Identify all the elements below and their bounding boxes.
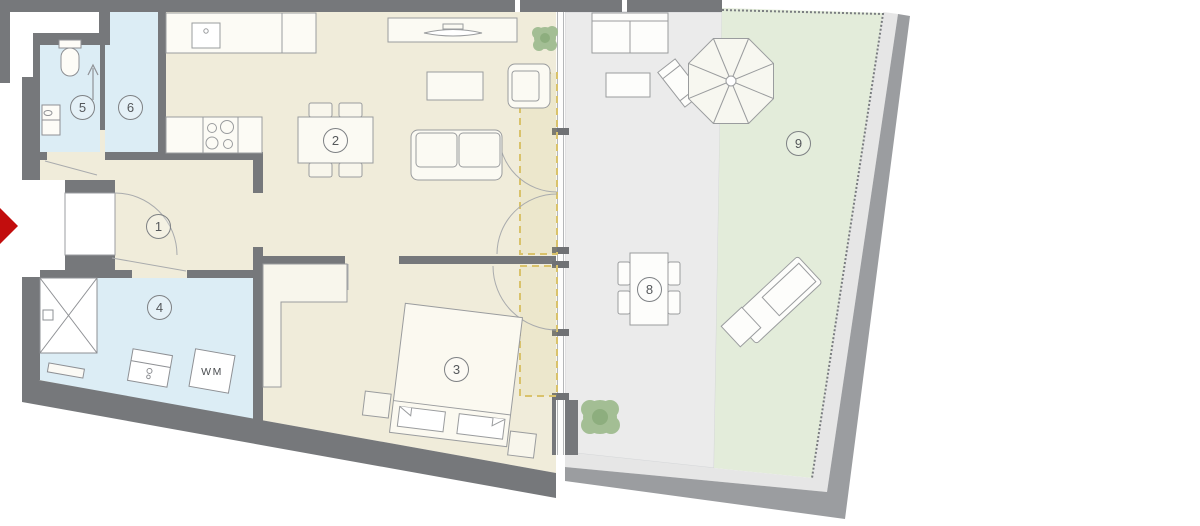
room-number: 9 [795, 136, 802, 151]
entrance-arrow-icon [0, 208, 18, 244]
wall-hall-stub-lower [253, 247, 263, 278]
room-number: 1 [155, 219, 162, 234]
wall-left-edge [0, 0, 10, 83]
room-label-6: 6 [118, 95, 143, 120]
entrance-door-opening [65, 193, 115, 255]
wall-entrance-top [65, 180, 115, 193]
dining-chair [309, 163, 332, 177]
kitchen-sink [192, 23, 220, 48]
plant-living-corner [532, 26, 558, 51]
tv-area [388, 18, 517, 42]
floorplan-page: 1 2 3 4 5 6 8 9 WM [0, 0, 1200, 526]
terrace-side-table [606, 73, 650, 97]
sofa-cushion [459, 133, 500, 167]
sofa-cushion [416, 133, 457, 167]
room-number: 3 [453, 362, 460, 377]
wall-top-b [520, 0, 622, 12]
armchair-seat [512, 71, 539, 101]
swing-zone-bedroom [520, 266, 557, 396]
parasol [689, 39, 774, 124]
bath-sink-group [128, 349, 173, 387]
exterior-notch-top [10, 12, 99, 33]
wall-notch-right [99, 12, 110, 45]
room-number: 2 [332, 133, 339, 148]
dining-chair [339, 103, 362, 117]
room-label-8: 8 [637, 277, 662, 302]
wall-hall-bath-left [40, 270, 132, 278]
terrace-chair [668, 291, 680, 314]
kitchen-counter-top [166, 13, 316, 53]
wall-top-a [0, 0, 515, 12]
wall-wc-divider [100, 45, 105, 130]
floor-storage-6 [105, 12, 158, 152]
room-label-4: 4 [147, 295, 172, 320]
dining-chair [339, 163, 362, 177]
kitchen-counter-lower [166, 117, 262, 153]
terrace-chair [618, 262, 630, 285]
toilet-tank [59, 40, 81, 48]
room-label-9: 9 [786, 131, 811, 156]
room-number: 4 [156, 300, 163, 315]
wall-hall-bath-right [187, 270, 253, 278]
room-label-5: 5 [70, 95, 95, 120]
room-label-1: 1 [146, 214, 171, 239]
exterior-notch-side [10, 33, 33, 77]
washing-machine-label: WM [190, 366, 234, 378]
toilet-bowl [61, 48, 79, 76]
nightstand [508, 431, 537, 458]
door-swing-zones [520, 73, 557, 396]
terrace-chair [618, 291, 630, 314]
wall-living-bed-right [399, 256, 556, 264]
wall-wc-door-jamb [40, 152, 47, 160]
room-number: 6 [127, 100, 134, 115]
room-label-3: 3 [444, 357, 469, 382]
room-number: 5 [79, 100, 86, 115]
room-label-2: 2 [323, 128, 348, 153]
bush-terrace [581, 400, 620, 434]
tv-stand [443, 24, 463, 29]
coffee-table [427, 72, 483, 100]
wall-storage-right [158, 12, 166, 160]
wall-living-bed-left [263, 256, 345, 264]
floorplan-drawing [0, 0, 1200, 526]
nightstand [362, 391, 391, 418]
wall-wc-left [33, 45, 40, 152]
room-number: 8 [646, 282, 653, 297]
wall-left-lower [22, 277, 40, 380]
terrace-chair [668, 262, 680, 285]
wall-bath-bed-divider [253, 278, 263, 421]
entrance-porch [18, 180, 65, 277]
dining-chair [309, 103, 332, 117]
shower-drain [43, 310, 53, 320]
wall-top-c [627, 0, 722, 12]
wall-hall-stub-upper [253, 152, 263, 193]
